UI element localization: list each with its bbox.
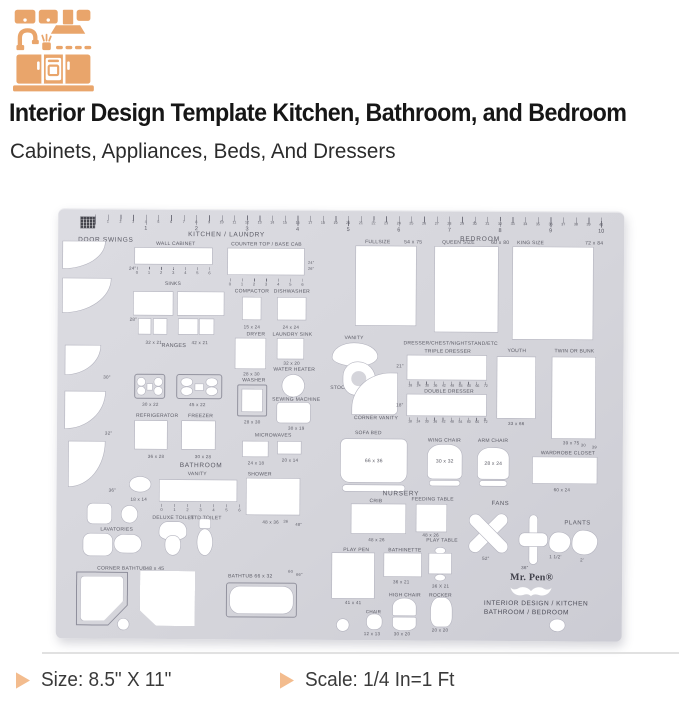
label-32in: 32" — [105, 432, 112, 437]
ruler-feet-number: 37 — [561, 223, 565, 227]
ruler-inch-number: 5 — [347, 228, 350, 234]
label-18in: 18" — [396, 403, 403, 408]
lavatory-round-cutout — [121, 506, 137, 523]
ruler-feet-number: 7 — [183, 221, 185, 225]
sink-32x21-cutout — [134, 292, 173, 315]
washer-cutout-part — [243, 390, 262, 412]
label-bathinette-size: 36 x 21 — [393, 580, 410, 585]
double-dresser-number: 72 — [484, 421, 488, 425]
label-sofa-bed: SOFA BED — [355, 431, 382, 436]
arm-chair-cutout: 28 x 24 — [478, 448, 509, 479]
bullet-triangle-icon — [16, 672, 30, 689]
counter-top-cutout — [228, 248, 304, 274]
brand-line-1: INTERIOR DESIGN / KITCHEN — [484, 601, 588, 608]
door-swing-30 — [65, 345, 100, 374]
triple-dresser-number: 60 — [467, 385, 471, 389]
chair-size-label: 30 x 32 — [428, 445, 462, 479]
bath-vanity-number: 2 — [186, 508, 188, 512]
fan-plus-cutout — [519, 515, 547, 564]
ruler-feet-number: 6 — [170, 221, 172, 225]
wing-chair-strip — [430, 481, 460, 486]
label-shower-size: 48 x 36 — [262, 521, 279, 526]
label-water-heater: WATER HEATER — [273, 368, 315, 373]
wardrobe-cutout — [533, 457, 597, 483]
label-36in: 36" — [109, 489, 116, 494]
washer-cutout — [237, 384, 267, 416]
label-triple-dresser: TRIPLE DRESSER — [424, 350, 471, 355]
door-swing-28 — [63, 278, 111, 312]
sink-42x21-cutout — [178, 292, 224, 315]
twin-bed-cutout — [552, 357, 595, 438]
fan-plus-cutout-part — [519, 533, 547, 546]
counter-number: 6 — [301, 283, 303, 287]
label-washer-size: 28 x 30 — [244, 420, 261, 425]
deluxe-toilet-cutout — [159, 522, 186, 555]
scale-text: Scale: 1/4 In=1 Ft — [305, 669, 454, 692]
label-play-table-size: 36 X 21 — [432, 585, 449, 590]
label-lavatories: LAVATORIES — [100, 528, 133, 533]
arm-chair-strip — [480, 481, 507, 486]
dryer-cutout — [235, 338, 265, 368]
deluxe-toilet-cutout-part — [165, 536, 180, 555]
triple-dresser-number: 36 — [433, 385, 437, 389]
high-chair-cutout-part — [393, 617, 416, 631]
ruler-inch-number: 7 — [448, 228, 451, 234]
ruler-feet-number: 38 — [574, 223, 578, 227]
ruler-feet-number: 23 — [384, 222, 388, 226]
ruler-feet-number: 29 — [460, 223, 464, 227]
label-range-30x22: 30 x 22 — [142, 403, 159, 408]
wall-cabinet-number: 2 — [160, 271, 162, 275]
label-queen-size: 60 x 80 — [491, 241, 509, 246]
ruler-feet-number: 27 — [435, 223, 439, 227]
ruler-feet-number: 17 — [308, 222, 312, 226]
label-bathtub-66: 66" — [296, 573, 303, 577]
triple-dresser-number: 30 — [425, 385, 429, 389]
label-21in: 21" — [396, 364, 403, 369]
youth-bed-cutout — [497, 357, 535, 418]
label-chair-size: 12 x 13 — [364, 632, 381, 637]
label-washer-size-top: 28 x 30 — [243, 372, 260, 377]
page-title: Interior Design Template Kitchen, Bathro… — [9, 99, 626, 128]
label-twin: TWIN OR BUNK — [554, 349, 594, 354]
label-bath-vanity: VANITY — [188, 472, 207, 477]
label-shower-48: 48" — [295, 523, 302, 527]
fan-x-cutout — [462, 511, 514, 556]
label-kitchen-laundry: KITCHEN / LAUNDRY — [188, 232, 265, 239]
ruler-feet-number: 11 — [232, 221, 236, 225]
bath-vanity-number: 4 — [212, 508, 214, 512]
label-twin-39: 39 — [592, 446, 597, 450]
sewing-machine-cutout — [277, 403, 310, 423]
size-text: Size: 8.5" X 11" — [41, 669, 171, 692]
bullet-triangle-icon — [280, 672, 294, 689]
lavatory-rounded-cutout — [114, 535, 141, 553]
lavatory-square-cutout — [87, 503, 111, 523]
ruler-inch-number: 4 — [296, 227, 299, 233]
page-subtitle: Cabinets, Appliances, Beds, And Dressers — [10, 140, 396, 164]
label-freezer: FREEZER — [188, 414, 213, 419]
ruler-feet-number: 22 — [371, 222, 375, 226]
ruler-feet-number: 10 — [220, 221, 224, 225]
triple-dresser-number: 42 — [442, 385, 446, 389]
label-shower-36: 36 — [283, 520, 288, 524]
ruler-feet-number: 12 — [245, 221, 249, 225]
triple-dresser-number: 66 — [475, 385, 479, 389]
double-dresser-number: 36 — [433, 421, 437, 425]
wall-cabinet-cutout — [135, 248, 212, 264]
play-pen-cutout — [332, 553, 374, 598]
label-bathroom: BATHROOM — [180, 463, 223, 470]
ruler-feet-number: 2 — [119, 221, 121, 225]
label-dishwasher-size: 24 x 24 — [283, 326, 300, 331]
label-sinks: SINKS — [165, 282, 181, 287]
wall-cabinet-number: 4 — [184, 271, 186, 275]
compactor-cutout — [243, 297, 261, 319]
bathtub-cutout-part — [230, 586, 292, 613]
label-refrigerator-size: 36 x 28 — [148, 455, 165, 460]
water-heater-cutout — [282, 375, 304, 397]
label-youth-size: 33 x 66 — [508, 422, 525, 427]
label-30in: 30" — [103, 376, 110, 381]
label-queen: QUEEN SIZE — [442, 241, 475, 246]
ruler-feet-number: 33 — [511, 223, 515, 227]
brand-name: Mr. Pen® — [510, 573, 553, 583]
chair-size-label: 28 x 24 — [478, 448, 509, 479]
sofa-bed-cutout: 66 x 36 — [341, 439, 407, 482]
kitchen-icon — [13, 3, 99, 104]
label-counter-top: COUNTER TOP / BASE CAB — [231, 242, 302, 247]
double-dresser-number: 42 — [442, 421, 446, 425]
scale-bullet: Scale: 1/4 In=1 Ft — [280, 669, 462, 692]
label-sewing-size: 30 x 19 — [288, 427, 305, 432]
double-dresser-number: 54 — [458, 421, 462, 425]
range-30x22-cutout — [134, 374, 165, 399]
laundry-sink-cutout — [277, 339, 303, 359]
triple-dresser-number: 72 — [484, 385, 488, 389]
label-bathtub: BATHTUB 66 x 32 — [228, 574, 273, 579]
label-compactor: COMPACTOR — [235, 289, 269, 294]
triple-dresser-number: 24 — [417, 384, 421, 388]
ruler-feet-number: 4 — [145, 221, 147, 225]
label-microwaves: MICROWAVES — [255, 433, 292, 438]
range-30x22-cutout-part — [137, 387, 145, 395]
ruler-feet-number: 28 — [447, 223, 451, 227]
label-dishwasher: DISHWASHER — [274, 290, 310, 295]
microwave-24x18-cutout — [243, 441, 268, 456]
label-bathtub-60: 60 — [288, 570, 293, 574]
label-laundry-sink: LAUNDRY SINK — [273, 333, 313, 338]
wall-cabinet-number: 3 — [172, 271, 174, 275]
bathinette-cutout — [384, 553, 421, 576]
double-dresser-number: 60 — [467, 421, 471, 425]
hang-hole — [550, 619, 565, 631]
counter-number: 4 — [277, 283, 279, 287]
ruler-feet-number: 8 — [195, 221, 197, 225]
ruler-feet-number: 20 — [346, 222, 350, 226]
bath-vanity-number: 6 — [238, 508, 240, 512]
range-30x22-cutout-part — [154, 378, 162, 386]
std-toilet-cutout-part — [199, 519, 210, 528]
double-dresser-number: 18 — [408, 420, 412, 424]
label-arm-chair: ARM CHAIR — [478, 439, 508, 444]
high-chair-cutout-part — [393, 598, 416, 615]
range-45x22-cutout-part — [206, 388, 217, 396]
ruler-feet-number: 21 — [359, 222, 363, 226]
ruler-feet-number: 25 — [409, 222, 413, 226]
ruler-zero-block — [80, 216, 95, 228]
label-fullsize-size: 54 x 75 — [404, 240, 422, 245]
range-30x22-cutout-part — [154, 387, 162, 395]
range-30x22-cutout-part — [147, 384, 153, 390]
queen-bed-cutout — [435, 247, 499, 332]
wall-cabinet-number: 5 — [196, 271, 198, 275]
microwave-20x14-cutout — [278, 442, 301, 454]
double-dresser-number: 24 — [416, 420, 420, 424]
ruler-feet-number: 30 — [473, 223, 477, 227]
label-twin-30: 30 — [581, 443, 586, 447]
door-swing-24 — [63, 241, 105, 268]
ruler-inch-number: 10 — [598, 229, 604, 235]
ruler-feet-number: 31 — [485, 223, 489, 227]
label-vanity: VANITY — [345, 336, 364, 341]
label-microwave-20x14: 20 x 14 — [282, 459, 299, 464]
label-play-pen-size: 41 x 41 — [345, 601, 362, 606]
label-washer: WASHER — [242, 378, 265, 383]
label-wing-chair: WING CHAIR — [428, 439, 461, 444]
range-30x22-cutout-part — [138, 378, 146, 386]
ruler-feet-number: 32 — [498, 223, 502, 227]
freezer-cutout — [182, 421, 215, 449]
size-bullet: Size: 8.5" X 11" — [16, 669, 178, 692]
label-fullsize: FULLSIZE — [365, 240, 390, 245]
ruler-feet-number: 18 — [321, 222, 325, 226]
counter-number: 5 — [289, 283, 291, 287]
counter-number: 3 — [265, 283, 267, 287]
lavatory-oval-cutout — [130, 477, 151, 492]
range-45x22-cutout-part — [195, 384, 204, 390]
lavatory-rect-cutout — [83, 533, 112, 555]
label-ranges: RANGES — [161, 344, 186, 350]
corner-bathtub-cutout — [76, 571, 128, 625]
label-refrigerator: REFRIGERATOR — [136, 414, 178, 419]
sofa-size-label: 66 x 36 — [341, 439, 407, 482]
stencil-template-photo: 1234567891011121314151617181920212223242… — [56, 208, 625, 641]
sink-small-2 — [154, 319, 167, 334]
ruler-feet-number: 19 — [334, 222, 338, 226]
label-compactor-size: 15 x 24 — [244, 325, 261, 330]
label-king-size: 72 x 84 — [585, 241, 603, 246]
label-dryer: DRYER — [247, 332, 266, 337]
counter-number: 0 — [229, 282, 231, 286]
product-infographic: Interior Design Template Kitchen, Bathro… — [0, 0, 679, 703]
ruler-inch-number: 8 — [498, 228, 501, 234]
label-plant-large: 2' — [580, 558, 584, 563]
feeding-table-cutout — [416, 504, 446, 531]
label-wardrobe: WARDROBE CLOSET — [541, 451, 595, 456]
label-counter-26: 26" — [308, 268, 314, 272]
std-toilet-cutout — [196, 519, 213, 555]
double-dresser-number: 48 — [450, 421, 454, 425]
ruler-feet-number: 9 — [208, 221, 210, 225]
bathtub-cutout — [226, 582, 297, 617]
label-deluxe-toilet: DELUXE TOILET — [152, 516, 194, 521]
ruler-feet-number: 36 — [549, 223, 553, 227]
small-hole-1 — [118, 619, 129, 630]
label-plant-small: 1 1/2' — [549, 555, 561, 560]
range-45x22-cutout-part — [181, 378, 192, 386]
ruler-feet-number: 13 — [258, 221, 262, 225]
triple-dresser-number: 48 — [450, 385, 454, 389]
ruler-feet-number: 35 — [536, 223, 540, 227]
ruler-feet-number: 3 — [132, 221, 134, 225]
dishwasher-cutout — [278, 298, 306, 320]
bath-vanity-cutout — [160, 480, 237, 501]
refrigerator-cutout — [135, 421, 167, 449]
ruler-feet-number: 5 — [157, 221, 159, 225]
full-bed-cutout — [356, 246, 416, 325]
king-bed-cutout — [513, 247, 594, 339]
range-45x22-cutout-part — [181, 387, 192, 395]
double-dresser-cutout — [407, 394, 486, 415]
play-table-cutout — [429, 554, 451, 574]
label-range-45x22: 45 x 22 — [189, 403, 206, 408]
range-45x22-cutout-part — [206, 378, 217, 386]
std-toilet-cutout-part — [197, 529, 212, 555]
triple-dresser-number: 18 — [408, 384, 412, 388]
corner-shape-cutout — [140, 571, 195, 626]
wing-chair-cutout: 30 x 32 — [428, 445, 462, 479]
label-water-heater-size: 32 x 20 — [283, 362, 300, 367]
label-king: KING SIZE — [517, 241, 544, 246]
label-youth: YOUTH — [507, 349, 526, 354]
ruler-feet-number: 15 — [283, 222, 287, 226]
brand-line-2: BATHROOM / BEDROOM — [484, 610, 569, 617]
ruler-inch-number: 6 — [397, 228, 400, 234]
double-dresser-number: 66 — [475, 421, 479, 425]
ruler-feet-number: 24 — [397, 222, 401, 226]
chair-cutout — [367, 614, 382, 629]
label-high-chair-size: 30 x 20 — [394, 632, 411, 637]
label-crib-size: 48 x 26 — [368, 538, 385, 543]
ruler-inch-number: 1 — [144, 226, 147, 232]
plant-small-cutout — [549, 532, 570, 552]
ruler-feet-number: 16 — [296, 222, 300, 226]
label-twin-size: 39 x 75 — [563, 441, 580, 446]
wall-cabinet-number: 6 — [208, 271, 210, 275]
sink-small-4 — [200, 319, 214, 334]
wall-cabinet-number: 1 — [148, 271, 150, 275]
brand-mustache-icon — [510, 585, 552, 597]
label-plants: PLANTS — [564, 520, 590, 526]
small-hole-2 — [337, 619, 349, 631]
label-wardrobe-size: 60 x 24 — [554, 488, 571, 493]
label-play-table: PLAY TABLE — [426, 539, 458, 544]
high-chair-cutout — [393, 598, 416, 630]
label-sink-size-1: 32 x 21 — [145, 341, 162, 346]
ruler-feet-number: 34 — [523, 223, 527, 227]
label-28in: 28" — [130, 318, 137, 323]
label-microwave-24x18: 24 x 18 — [248, 461, 265, 466]
door-swing-36 — [69, 441, 105, 486]
ruler-feet-number: 1 — [107, 221, 109, 225]
ruler-feet-number: 26 — [422, 222, 426, 226]
plant-large-cutout — [572, 530, 597, 554]
ruler-feet-number: 14 — [270, 222, 274, 226]
range-45x22-cutout — [176, 374, 222, 399]
label-lavatory-size: 18 x 14 — [131, 498, 148, 503]
triple-dresser-number: 54 — [459, 385, 463, 389]
ruler-feet-number: 39 — [587, 224, 591, 228]
bath-vanity-number: 1 — [173, 508, 175, 512]
label-fans: FANS — [492, 501, 510, 507]
crib-cutout — [351, 504, 405, 533]
ruler-feet-number: 40 — [599, 224, 603, 228]
label-rocker-size: 20 x 20 — [432, 629, 449, 634]
sink-small-1 — [139, 319, 151, 334]
shower-cutout — [246, 478, 299, 514]
bath-vanity-number: 5 — [225, 508, 227, 512]
label-fan-36: 36" — [521, 566, 528, 571]
wall-cabinet-number: 0 — [136, 271, 138, 275]
label-corner-vanity: CORNER VANITY — [354, 416, 398, 421]
door-swing-32 — [65, 391, 105, 428]
label-shower: SHOWER — [248, 472, 272, 477]
label-wall-cabinet: WALL CABINET — [156, 242, 195, 247]
label-dresser-group: DRESSER/CHEST/NIGHTSTAND/ETC — [403, 341, 497, 347]
bath-vanity-number: 0 — [160, 508, 162, 512]
sink-small-3 — [179, 319, 198, 334]
label-counter-24: 24" — [308, 262, 314, 266]
counter-number: 2 — [253, 282, 255, 286]
label-feeding-table: FEEDING TABLE — [412, 497, 454, 502]
rocker-cutout — [431, 598, 452, 627]
label-corner-bathtub: CORNER BATHTUB — [97, 567, 147, 572]
section-divider — [42, 652, 679, 654]
double-dresser-number: 30 — [425, 421, 429, 425]
triple-dresser-cutout — [407, 355, 486, 379]
bath-vanity-number: 3 — [199, 508, 201, 512]
play-table-notch-bottom — [435, 575, 445, 581]
label-fan-52: 52" — [482, 557, 489, 562]
ruler-inch-number: 9 — [549, 229, 552, 235]
counter-number: 1 — [241, 282, 243, 286]
label-freezer-size: 30 x 28 — [195, 455, 212, 460]
label-sink-size-2: 42 x 21 — [191, 341, 208, 346]
